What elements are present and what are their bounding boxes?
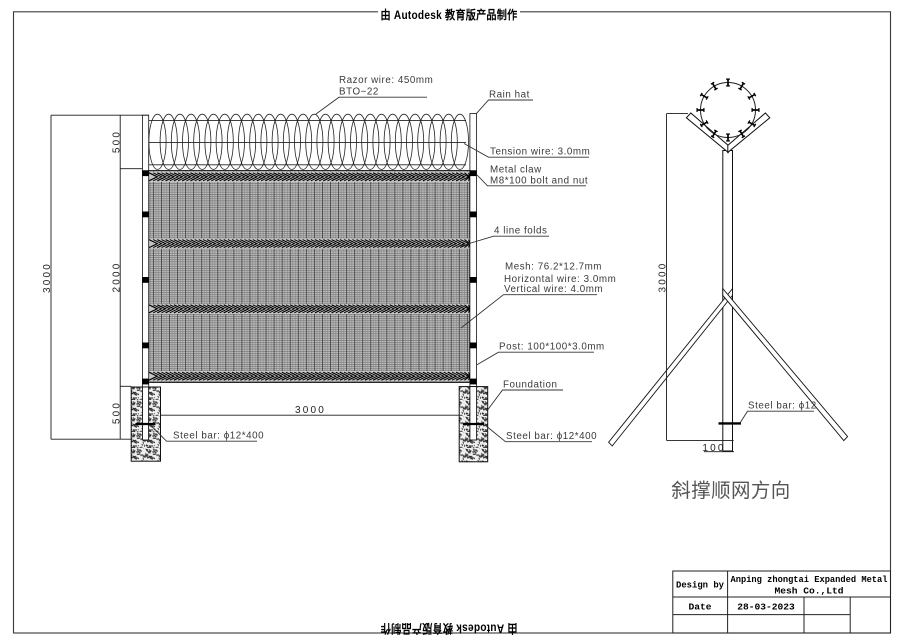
svg-text:2000: 2000 xyxy=(111,261,122,292)
svg-text:100: 100 xyxy=(702,443,725,454)
svg-text:500: 500 xyxy=(111,401,122,424)
svg-text:Mesh: 76.2*12.7mm: Mesh: 76.2*12.7mm xyxy=(505,262,602,273)
svg-text:28-03-2023: 28-03-2023 xyxy=(737,602,795,613)
svg-text:3000: 3000 xyxy=(42,262,53,293)
svg-text:Steel bar: ϕ12*400: Steel bar: ϕ12*400 xyxy=(506,431,597,442)
svg-text:Design by: Design by xyxy=(676,580,724,591)
svg-text:斜撑顺网方向: 斜撑顺网方向 xyxy=(671,480,790,502)
svg-text:Post: 100*100*3.0mm: Post: 100*100*3.0mm xyxy=(499,342,605,353)
svg-text:BTO−22: BTO−22 xyxy=(339,87,379,98)
svg-text:Anping zhongtai Expanded Metal: Anping zhongtai Expanded Metal xyxy=(731,574,888,585)
svg-text:由 Autodesk 教育版产品制作: 由 Autodesk 教育版产品制作 xyxy=(381,7,518,22)
svg-text:Foundation: Foundation xyxy=(503,380,558,391)
svg-text:3000: 3000 xyxy=(658,261,669,292)
svg-text:Rain hat: Rain hat xyxy=(489,90,530,101)
svg-text:由 Autodesk 教育版产品制作: 由 Autodesk 教育版产品制作 xyxy=(381,621,518,636)
svg-text:Steel bar: ϕ12*400: Steel bar: ϕ12*400 xyxy=(173,431,264,442)
svg-text:4 line folds: 4 line folds xyxy=(494,226,547,237)
svg-text:Date: Date xyxy=(688,602,711,613)
svg-text:Vertical wire: 4.0mm: Vertical wire: 4.0mm xyxy=(504,284,603,295)
svg-text:Steel bar: ϕ12: Steel bar: ϕ12 xyxy=(748,401,817,412)
svg-text:Mesh Co.,Ltd: Mesh Co.,Ltd xyxy=(774,586,843,597)
svg-text:Tension wire: 3.0mm: Tension wire: 3.0mm xyxy=(490,147,590,158)
svg-text:3000: 3000 xyxy=(295,405,326,416)
svg-text:M8*100 bolt and nut: M8*100 bolt and nut xyxy=(490,176,588,187)
svg-text:Razor wire: 450mm: Razor wire: 450mm xyxy=(339,75,433,86)
svg-text:500: 500 xyxy=(111,130,122,153)
svg-text:Metal claw: Metal claw xyxy=(490,165,542,176)
